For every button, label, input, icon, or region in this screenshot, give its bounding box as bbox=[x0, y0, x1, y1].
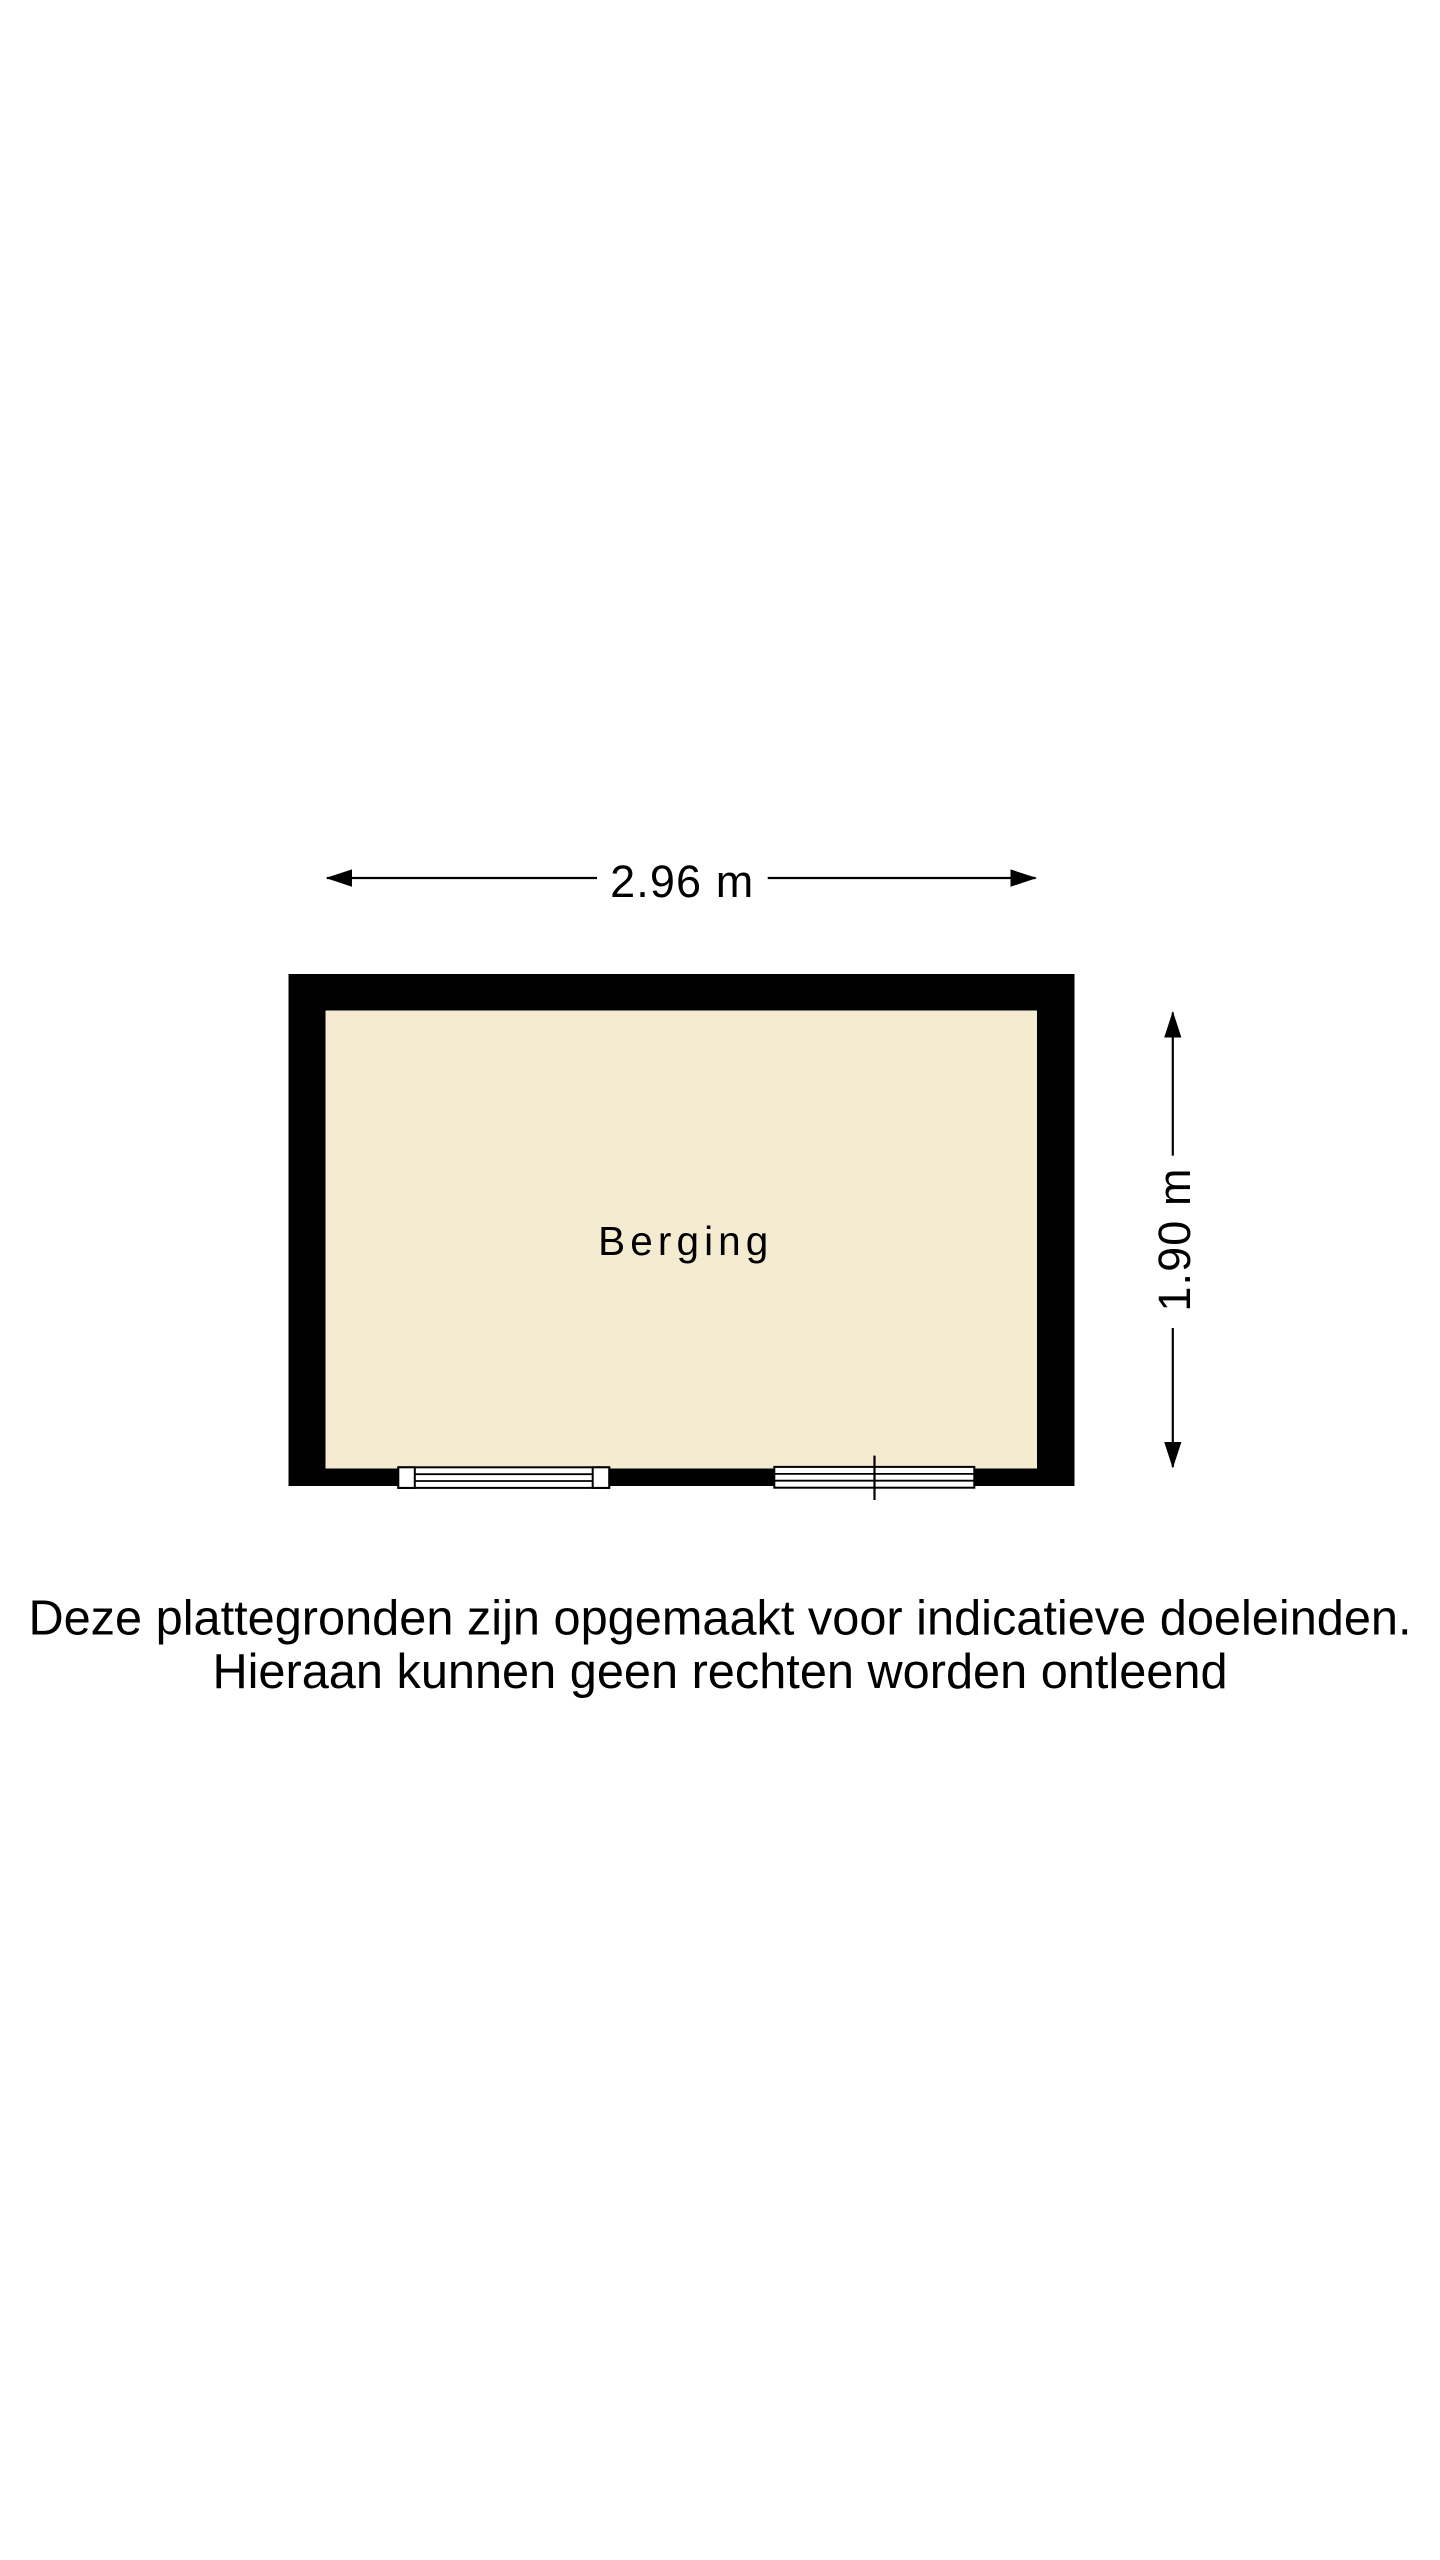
svg-text:Berging: Berging bbox=[598, 1218, 773, 1264]
svg-text:Deze plattegronden zijn opgema: Deze plattegronden zijn opgemaakt voor i… bbox=[28, 1592, 1411, 1646]
svg-text:1.90 m: 1.90 m bbox=[1149, 1167, 1200, 1311]
svg-text:Hieraan kunnen geen rechten wo: Hieraan kunnen geen rechten worden ontle… bbox=[212, 1645, 1227, 1699]
svg-text:2.96 m: 2.96 m bbox=[610, 856, 754, 907]
